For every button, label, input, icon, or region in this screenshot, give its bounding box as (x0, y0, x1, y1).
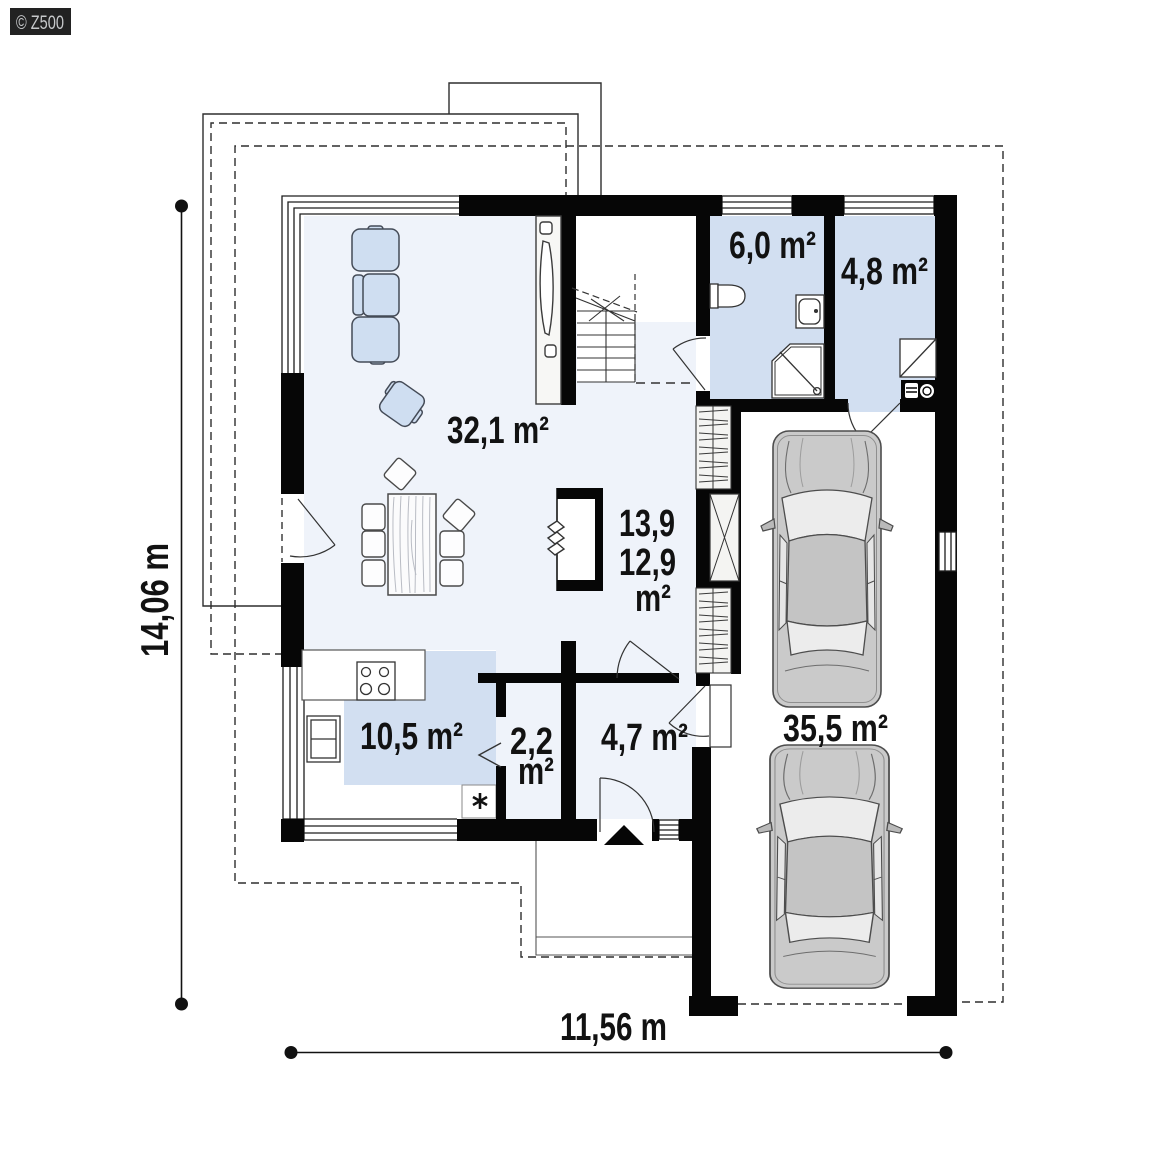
svg-text:m²: m² (635, 578, 671, 620)
svg-text:4,8 m²: 4,8 m² (841, 251, 928, 293)
svg-text:© Z500: © Z500 (16, 13, 64, 34)
svg-text:m²: m² (518, 751, 554, 793)
svg-text:11,56 m: 11,56 m (560, 1006, 667, 1049)
svg-text:35,5 m²: 35,5 m² (783, 708, 888, 750)
svg-text:32,1 m²: 32,1 m² (447, 410, 549, 452)
svg-text:13,9: 13,9 (619, 503, 675, 545)
svg-text:6,0 m²: 6,0 m² (729, 225, 816, 267)
svg-text:4,7 m²: 4,7 m² (601, 717, 688, 759)
svg-text:10,5 m²: 10,5 m² (360, 716, 463, 758)
svg-text:14,06 m: 14,06 m (134, 543, 177, 657)
